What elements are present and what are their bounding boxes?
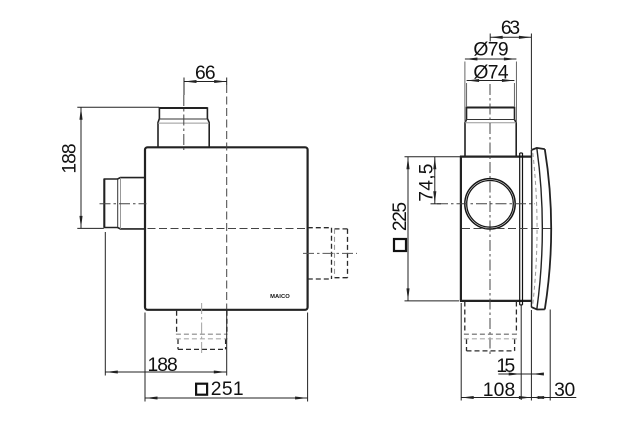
svg-text:225: 225 — [390, 202, 411, 231]
svg-text:74,5: 74,5 — [417, 163, 438, 201]
svg-text:Ø74: Ø74 — [473, 62, 508, 83]
svg-text:188: 188 — [60, 143, 81, 173]
svg-text:15: 15 — [496, 356, 515, 377]
svg-text:30: 30 — [554, 380, 575, 401]
svg-text:63: 63 — [501, 18, 520, 39]
svg-text:MAICO: MAICO — [270, 294, 290, 300]
svg-text:188: 188 — [148, 355, 178, 376]
svg-text:66: 66 — [195, 63, 216, 84]
svg-text:108: 108 — [483, 380, 515, 401]
svg-text:Ø79: Ø79 — [473, 39, 508, 60]
svg-text:251: 251 — [211, 379, 244, 400]
